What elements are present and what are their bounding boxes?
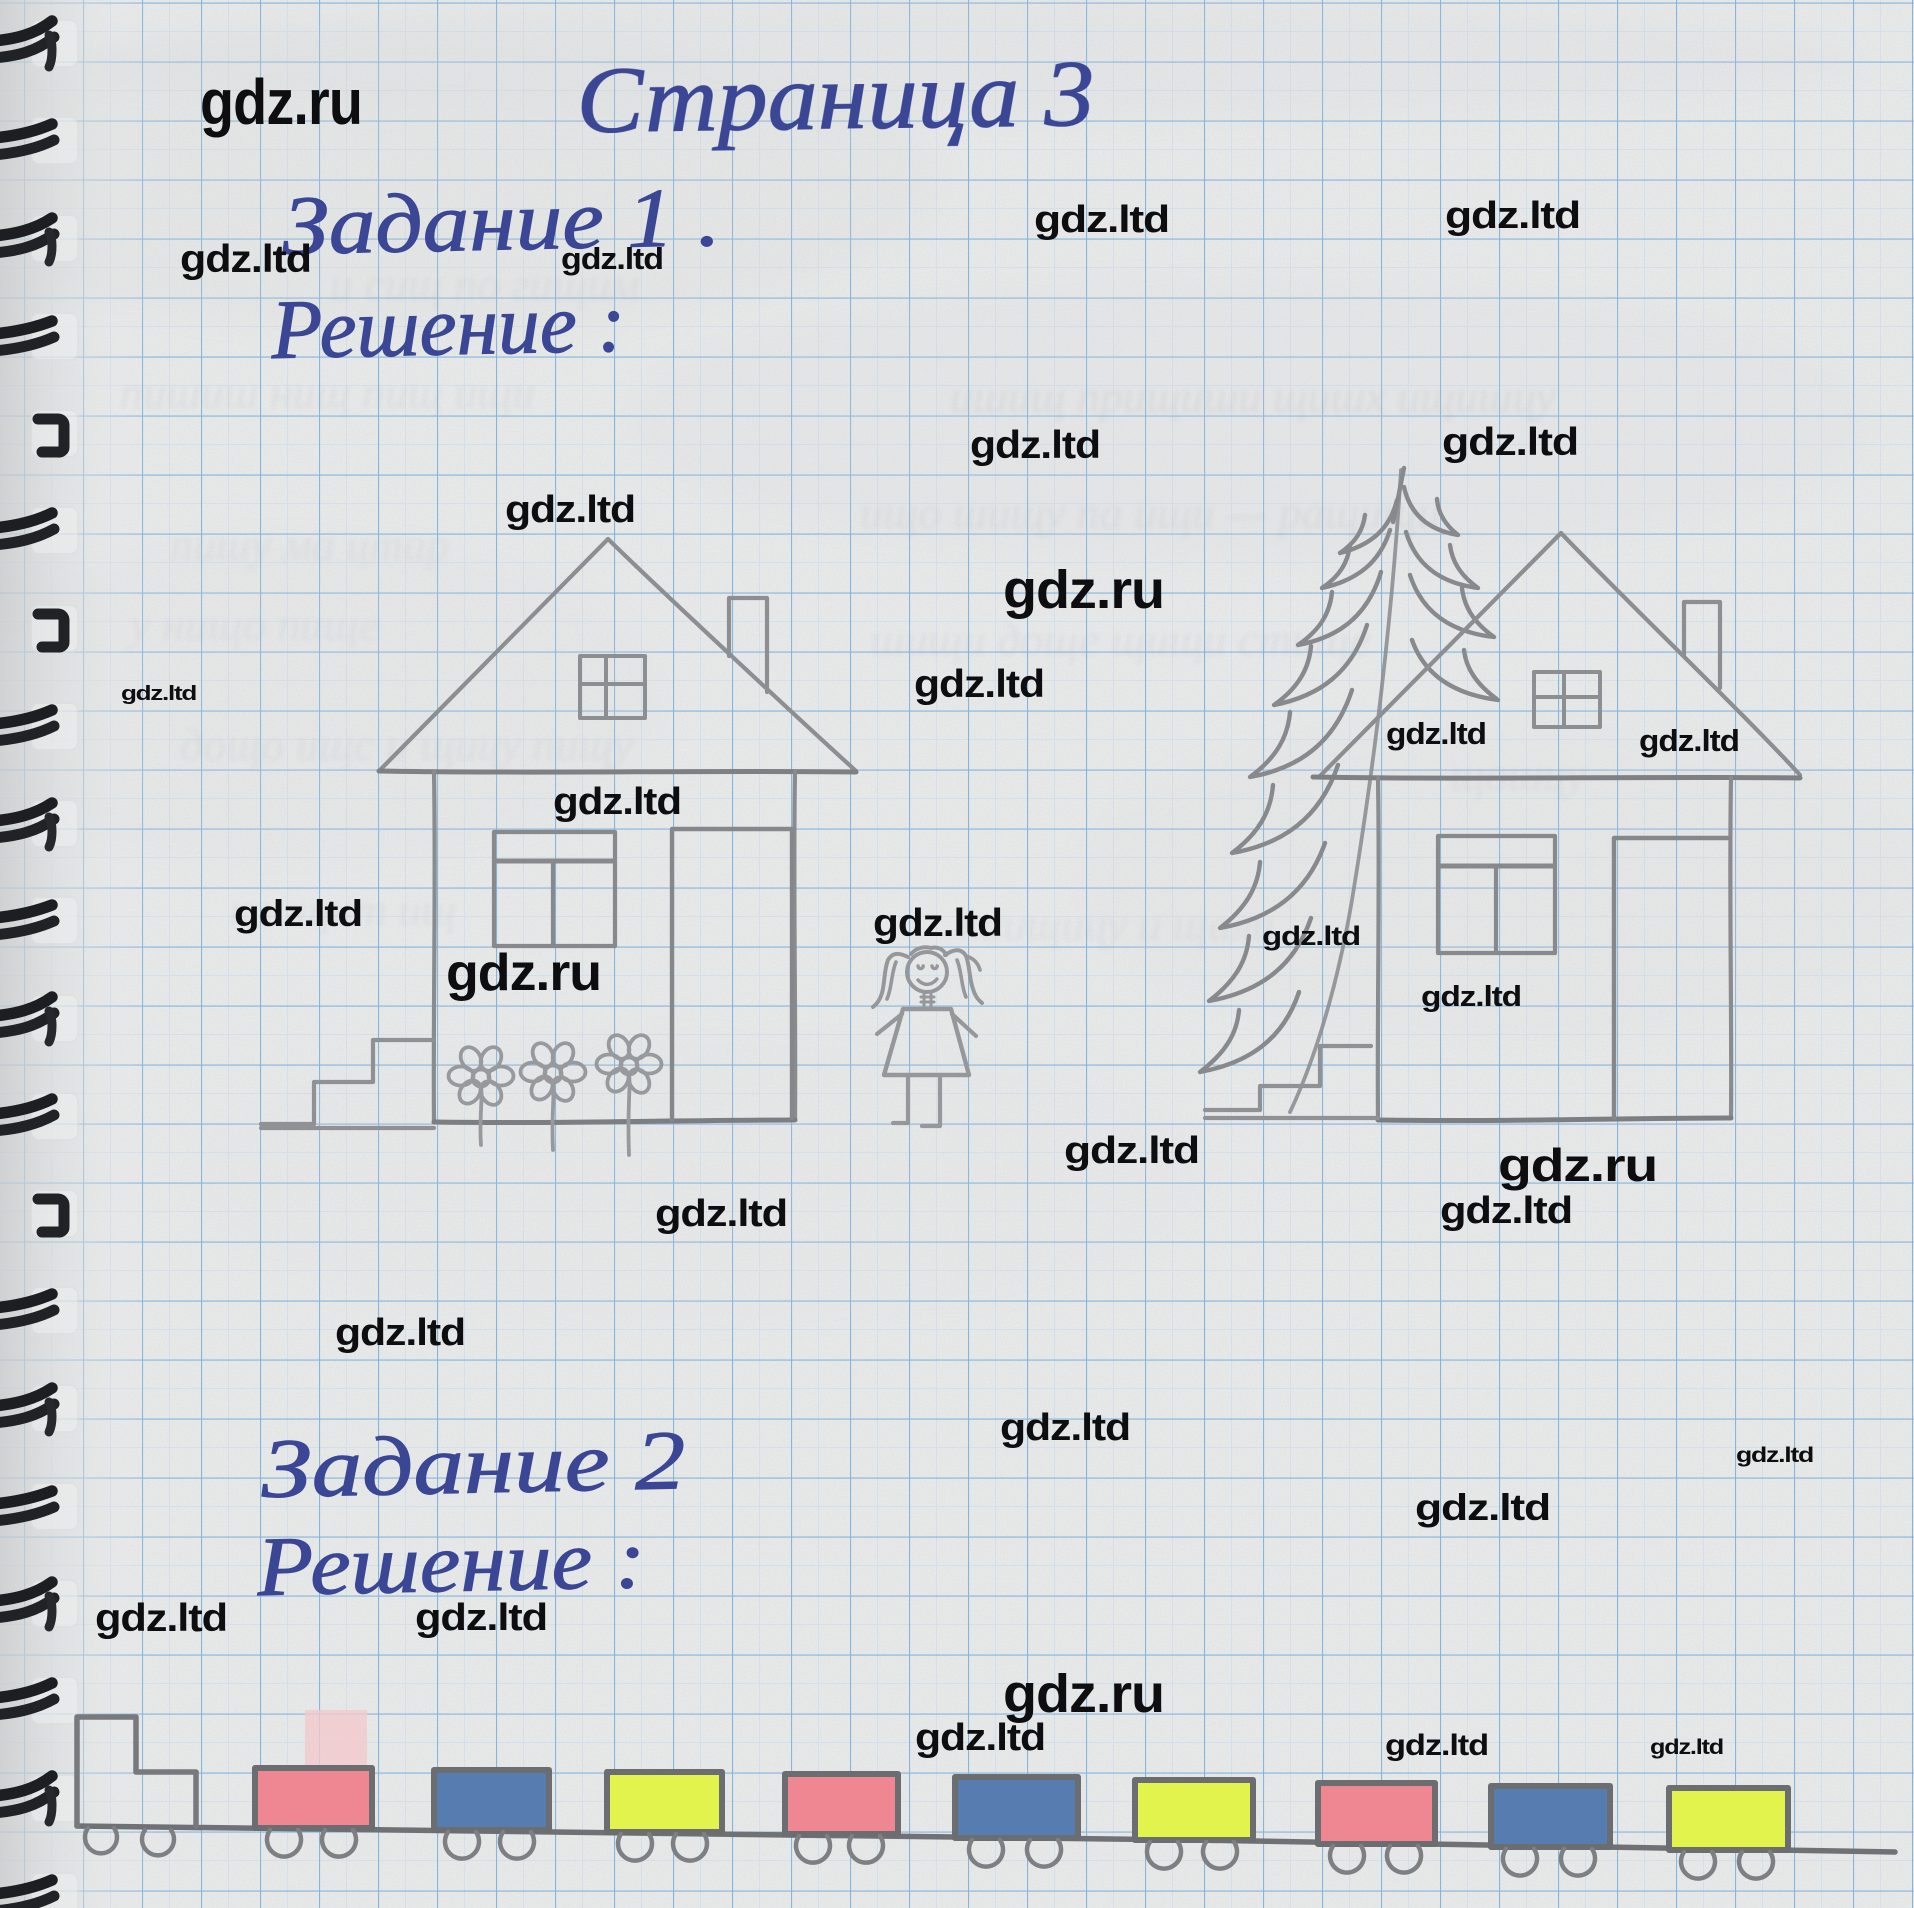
svg-text:gdz.ltd: gdz.ltd: [655, 1193, 787, 1235]
svg-text:gdz.ltd: gdz.ltd: [914, 663, 1044, 706]
svg-text:gdz.ltd: gdz.ltd: [1385, 1729, 1488, 1762]
svg-text:gdz.ltd: gdz.ltd: [1736, 1444, 1813, 1467]
svg-text:gdz.ltd: gdz.ltd: [415, 1597, 547, 1639]
svg-text:Решение :: Решение :: [269, 277, 626, 377]
svg-text:gdz.ltd: gdz.ltd: [1034, 199, 1169, 241]
svg-text:gdz.ltd: gdz.ltd: [1650, 1736, 1723, 1759]
svg-text:щошцу: щошцу: [1450, 749, 1586, 800]
svg-text:gdz.ltd: gdz.ltd: [873, 902, 1002, 945]
svg-text:gdz.ltd: gdz.ltd: [121, 683, 196, 705]
svg-text:gdz.ltd: gdz.ltd: [234, 893, 362, 934]
svg-text:gdz.ltd: gdz.ltd: [95, 1597, 227, 1640]
svg-text:gdz.ltd: gdz.ltd: [553, 781, 681, 823]
svg-text:ищо шищу па ищи — ращищи: ищо шищу па ищи — ращищи: [860, 487, 1440, 538]
svg-text:ишищ прищиши щишх ищишцу: ишищ прищиши щишх ищишцу: [950, 371, 1556, 422]
svg-text:gdz.ltd: gdz.ltd: [1639, 723, 1739, 758]
svg-text:gdz.ltd: gdz.ltd: [970, 424, 1100, 467]
svg-text:gdz.ltd: gdz.ltd: [1442, 421, 1578, 464]
svg-text:gdz.ltd: gdz.ltd: [180, 238, 311, 281]
svg-text:gdz.ru: gdz.ru: [446, 944, 601, 1002]
svg-text:gdz.ltd: gdz.ltd: [505, 489, 635, 531]
svg-text:gdz.ltd: gdz.ltd: [1415, 1487, 1550, 1528]
svg-text:gdz.ru: gdz.ru: [1498, 1139, 1657, 1191]
svg-text:gdz.ru: gdz.ru: [200, 66, 362, 138]
svg-text:у нищо пище: у нищо пище: [126, 599, 380, 650]
svg-text:gdz.ltd: gdz.ltd: [335, 1312, 465, 1354]
svg-text:gdz.ltd: gdz.ltd: [1064, 1130, 1199, 1172]
svg-text:gdz.ltd: gdz.ltd: [1445, 195, 1580, 237]
svg-text:gdz.ru: gdz.ru: [1003, 1664, 1164, 1724]
svg-text:Задание 2: Задание 2: [260, 1414, 686, 1516]
svg-text:gdz.ltd: gdz.ltd: [561, 241, 663, 276]
svg-text:gdz.ru: gdz.ru: [1003, 560, 1164, 620]
svg-text:gdz.ltd: gdz.ltd: [1421, 981, 1521, 1013]
svg-text:Страница 3: Страница 3: [576, 42, 1095, 153]
svg-text:gdz.ltd: gdz.ltd: [1262, 921, 1360, 951]
svg-text:пишу ма цтар: пишу ма цтар: [170, 519, 449, 570]
svg-text:шищи доще щищи стище: шищи доще щищи стище: [870, 614, 1371, 665]
svg-text:gdz.ltd: gdz.ltd: [1000, 1407, 1130, 1449]
svg-text:gdz.ltd: gdz.ltd: [915, 1717, 1045, 1759]
svg-text:gdz.ltd: gdz.ltd: [1440, 1190, 1572, 1232]
svg-text:gdz.ltd: gdz.ltd: [1386, 716, 1486, 751]
